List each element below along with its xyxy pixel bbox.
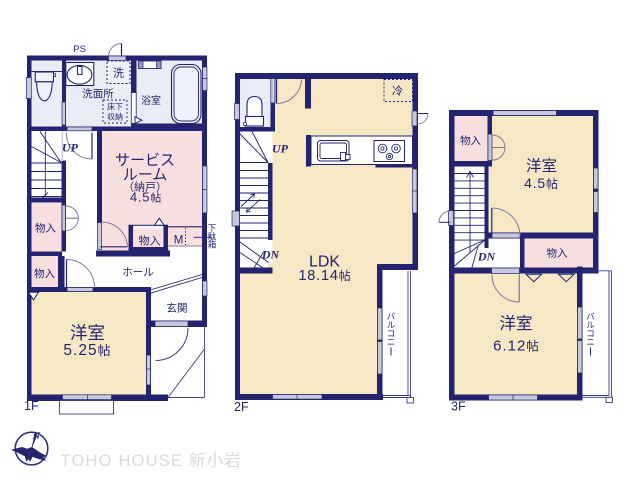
- svg-text:5.25帖: 5.25帖: [63, 342, 111, 359]
- svg-text:冷: 冷: [392, 85, 403, 98]
- svg-text:ホール: ホール: [122, 267, 154, 279]
- svg-text:浴室: 浴室: [141, 94, 161, 107]
- svg-text:1F: 1F: [24, 399, 39, 413]
- svg-text:ニ: ニ: [586, 337, 595, 347]
- svg-text:4.5帖: 4.5帖: [524, 175, 559, 191]
- svg-text:ニ: ニ: [387, 337, 396, 347]
- svg-text:2F: 2F: [234, 400, 249, 414]
- svg-text:TOHO HOUSE 新小岩: TOHO HOUSE 新小岩: [61, 451, 243, 470]
- svg-text:M: M: [174, 235, 184, 247]
- svg-text:UP: UP: [62, 141, 79, 155]
- svg-text:洗面所: 洗面所: [82, 88, 114, 100]
- svg-text:収納: 収納: [107, 112, 123, 122]
- svg-text:箱: 箱: [208, 240, 217, 250]
- svg-text:物入: 物入: [460, 134, 481, 147]
- svg-text:UP: UP: [272, 142, 289, 156]
- svg-text:3F: 3F: [451, 400, 466, 414]
- svg-text:DN: DN: [261, 248, 281, 262]
- svg-text:洋室: 洋室: [70, 323, 105, 343]
- svg-text:洋室: 洋室: [526, 157, 557, 175]
- svg-text:6.12帖: 6.12帖: [493, 338, 540, 355]
- svg-text:物入: 物入: [35, 222, 56, 235]
- svg-text:物入: 物入: [139, 234, 161, 248]
- svg-text:PS: PS: [73, 44, 86, 55]
- svg-text:物入: 物入: [547, 247, 568, 260]
- svg-text:物入: 物入: [34, 267, 55, 280]
- svg-text:DN: DN: [477, 249, 497, 263]
- svg-text:洋室: 洋室: [500, 314, 533, 333]
- svg-text:床下: 床下: [107, 102, 123, 112]
- svg-text:玄関: 玄関: [167, 302, 188, 315]
- svg-text:洗: 洗: [113, 66, 124, 79]
- svg-text:18.14帖: 18.14帖: [298, 268, 351, 284]
- svg-text:4.5帖: 4.5帖: [130, 190, 162, 205]
